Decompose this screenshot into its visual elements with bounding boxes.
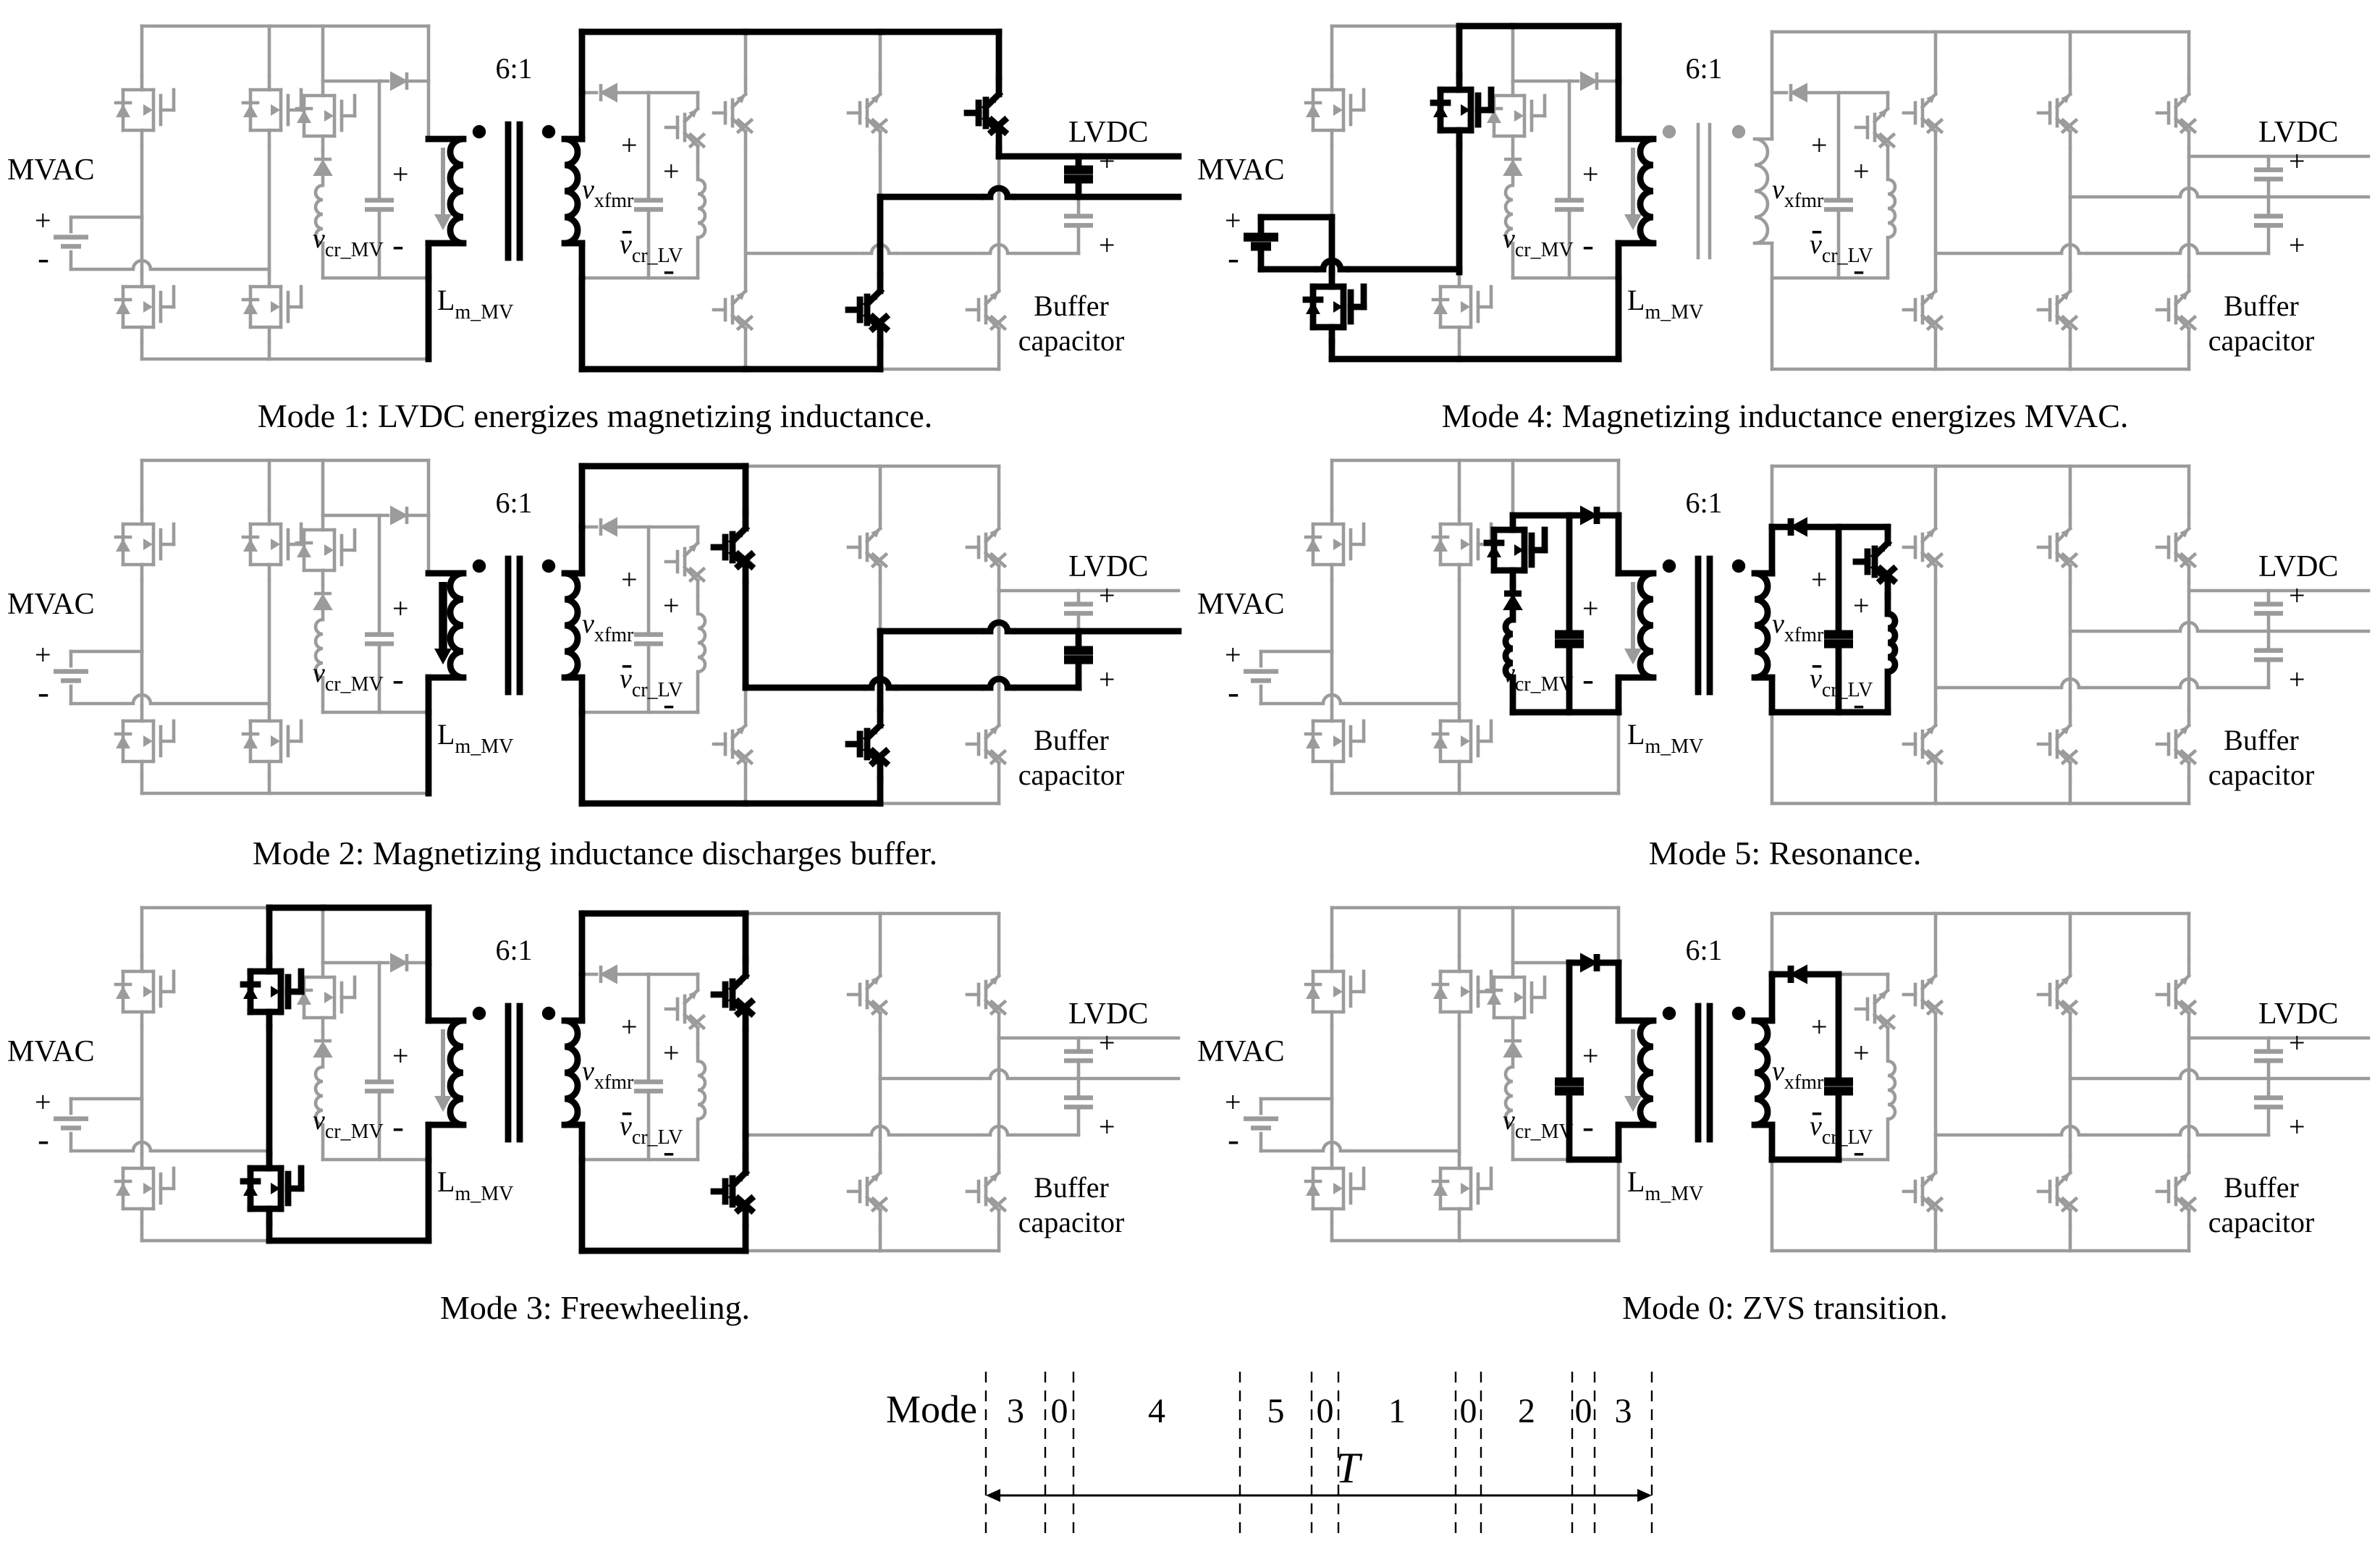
timing-mode-number: 1 [1388,1392,1406,1430]
plus-sign: + [2289,1110,2305,1143]
minus-sign: - [392,1107,404,1146]
circuit-panel-mode2: MVAC+-+vcr_MV-Lm_MV6:1+vxfmr-+vcr_LV-LVD… [0,434,1190,883]
plus-sign: + [1225,638,1241,671]
plus-sign: + [1582,1039,1599,1072]
plus-sign: + [1099,1110,1115,1143]
plus-sign: + [1811,1010,1828,1043]
plus-sign: + [1099,579,1115,612]
v-xfmr-label: vxfmr [1772,609,1824,646]
buffer-capacitor-label: Buffer [1034,1171,1109,1204]
circuit-panel-mode0: MVAC+-+vcr_MV-Lm_MV6:1+vxfmr-+vcr_LV-LVD… [1190,882,2380,1330]
circuit-schematic: MVAC+-+vcr_MV-Lm_MV6:1+vxfmr-+vcr_LV-LVD… [0,0,1190,405]
minus-sign: - [38,1120,49,1159]
turns-ratio-label: 6:1 [1685,486,1722,519]
plus-sign: + [392,1039,409,1072]
plus-sign: + [621,129,638,161]
mvac-label: MVAC [1197,153,1285,187]
timing-svg: Mode3045010203T [753,1343,1708,1545]
minus-sign: - [392,226,404,264]
plus-sign: + [621,1010,638,1043]
buffer-capacitor-label: Buffer [1034,724,1109,756]
buffer-capacitor-label: capacitor [2208,759,2315,791]
minus-sign: - [663,685,675,723]
plus-sign: + [2289,145,2305,177]
panel-caption: Mode 5: Resonance. [1190,834,2380,872]
circuit-panel-mode3: MVAC+-+vcr_MV-Lm_MV6:1+vxfmr-+vcr_LV-LVD… [0,882,1190,1330]
buffer-capacitor-label: Buffer [2224,1171,2299,1204]
minus-sign: - [1228,239,1239,277]
l-m-mv-label: Lm_MV [1627,718,1703,758]
minus-sign: - [1853,1132,1865,1170]
plus-sign: + [35,204,51,237]
plus-sign: + [2289,1026,2305,1059]
minus-sign: - [1228,673,1239,712]
buffer-capacitor-label: Buffer [2224,290,2299,322]
timing-mode-number: 0 [1317,1392,1334,1430]
minus-sign: - [1582,660,1594,698]
buffer-capacitor-label: capacitor [2208,1206,2315,1238]
period-label: T [1335,1444,1362,1492]
circuit-panel-mode5: MVAC+-+vcr_MV-Lm_MV6:1+vxfmr-+vcr_LV-LVD… [1190,434,2380,883]
circuit-schematic: MVAC+-+vcr_MV-Lm_MV6:1+vxfmr-+vcr_LV-LVD… [0,434,1190,840]
panel-caption: Mode 1: LVDC energizes magnetizing induc… [0,397,1190,435]
timing-mode-number: 3 [1007,1392,1024,1430]
panel-caption: Mode 2: Magnetizing inductance discharge… [0,834,1190,872]
minus-sign: - [663,1132,675,1170]
plus-sign: + [2289,579,2305,612]
plus-sign: + [35,1086,51,1118]
buffer-capacitor-label: capacitor [2208,324,2315,357]
circuit-schematic: MVAC+-+vcr_MV-Lm_MV6:1+vxfmr-+vcr_LV-LVD… [1190,434,2380,840]
plus-sign: + [1225,204,1241,237]
plus-sign: + [663,155,680,187]
plus-sign: + [35,638,51,671]
plus-sign: + [392,158,409,190]
timing-mode-label: Mode [886,1388,977,1431]
mode-timing-diagram: Mode3045010203T [753,1343,1708,1545]
minus-sign: - [38,239,49,277]
v-xfmr-label: vxfmr [582,1056,634,1094]
plus-sign: + [1811,563,1828,596]
minus-sign: - [392,660,404,698]
arrow-right-head-icon [1637,1489,1652,1502]
circuit-panel-mode4: MVAC+-+vcr_MV-Lm_MV6:1+vxfmr-+vcr_LV-LVD… [1190,0,2380,449]
plus-sign: + [663,589,680,622]
buffer-capacitor-label: Buffer [2224,724,2299,756]
l-m-mv-label: Lm_MV [437,718,513,758]
plus-sign: + [1853,589,1870,622]
plus-sign: + [1853,1037,1870,1069]
buffer-capacitor-label: Buffer [1034,290,1109,322]
plus-sign: + [1225,1086,1241,1118]
l-m-mv-label: Lm_MV [1627,284,1703,324]
turns-ratio-label: 6:1 [1685,934,1722,966]
minus-sign: - [38,673,49,712]
plus-sign: + [2289,663,2305,696]
l-m-mv-label: Lm_MV [437,284,513,324]
circuit-schematic: MVAC+-+vcr_MV-Lm_MV6:1+vxfmr-+vcr_LV-LVD… [1190,882,2380,1287]
panel-caption: Mode 4: Magnetizing inductance energizes… [1190,397,2380,435]
mvac-label: MVAC [7,588,95,621]
plus-sign: + [663,1037,680,1069]
plus-sign: + [1811,129,1828,161]
timing-mode-number: 4 [1148,1392,1165,1430]
circuit-schematic: MVAC+-+vcr_MV-Lm_MV6:1+vxfmr-+vcr_LV-LVD… [0,882,1190,1287]
plus-sign: + [392,592,409,625]
plus-sign: + [1582,592,1599,625]
panel-caption: Mode 0: ZVS transition. [1190,1288,2380,1327]
l-m-mv-label: Lm_MV [437,1165,513,1205]
turns-ratio-label: 6:1 [1685,52,1722,85]
minus-sign: - [1228,1120,1239,1159]
circuit-schematic: MVAC+-+vcr_MV-Lm_MV6:1+vxfmr-+vcr_LV-LVD… [1190,0,2380,405]
plus-sign: + [1099,663,1115,696]
minus-sign: - [1582,226,1594,264]
timing-mode-number: 0 [1051,1392,1068,1430]
timing-mode-number: 0 [1460,1392,1477,1430]
turns-ratio-label: 6:1 [495,486,532,519]
plus-sign: + [621,563,638,596]
timing-mode-number: 3 [1615,1392,1632,1430]
timing-mode-number: 5 [1267,1392,1285,1430]
turns-ratio-label: 6:1 [495,934,532,966]
v-xfmr-label: vxfmr [582,174,634,212]
circuit-panel-mode1: MVAC+-+vcr_MV-Lm_MV6:1+vxfmr-+vcr_LV-LVD… [0,0,1190,449]
buffer-capacitor-label: capacitor [1018,1206,1125,1238]
plus-sign: + [1582,158,1599,190]
l-m-mv-label: Lm_MV [1627,1165,1703,1205]
mvac-label: MVAC [1197,588,1285,621]
v-xfmr-label: vxfmr [1772,1056,1824,1094]
mvac-label: MVAC [7,153,95,187]
minus-sign: - [1853,685,1865,723]
v-xfmr-label: vxfmr [1772,174,1824,212]
turns-ratio-label: 6:1 [495,52,532,85]
timing-mode-number: 2 [1518,1392,1535,1430]
minus-sign: - [1582,1107,1594,1146]
timing-mode-number: 0 [1575,1392,1592,1430]
plus-sign: + [1099,145,1115,177]
plus-sign: + [2289,229,2305,261]
buffer-capacitor-label: capacitor [1018,759,1125,791]
minus-sign: - [1853,250,1865,289]
mvac-label: MVAC [7,1035,95,1068]
panel-caption: Mode 3: Freewheeling. [0,1288,1190,1327]
minus-sign: - [663,250,675,289]
plus-sign: + [1099,229,1115,261]
arrow-left-head-icon [986,1489,1000,1502]
plus-sign: + [1099,1026,1115,1059]
v-xfmr-label: vxfmr [582,609,634,646]
plus-sign: + [1853,155,1870,187]
buffer-capacitor-label: capacitor [1018,324,1125,357]
mvac-label: MVAC [1197,1035,1285,1068]
